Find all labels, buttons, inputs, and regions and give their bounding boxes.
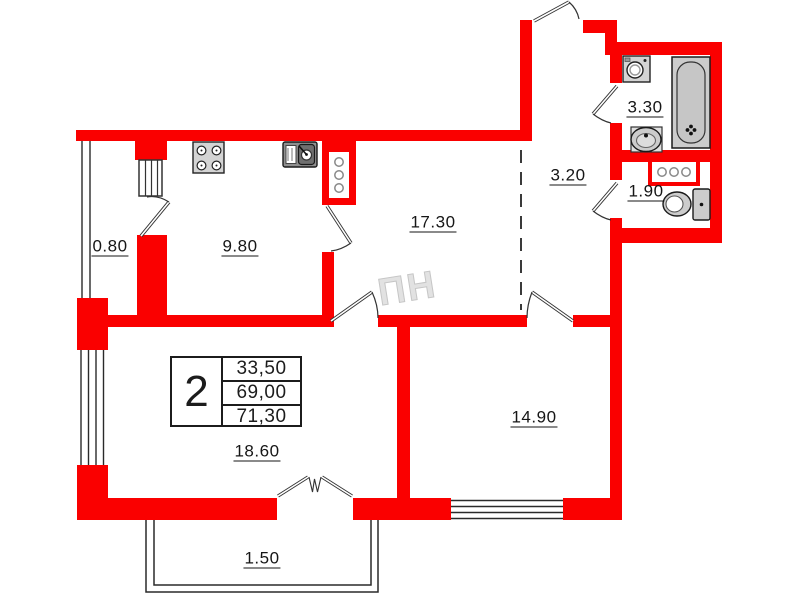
plan-linework	[0, 0, 800, 600]
room-area-label-kitchen: 9.80	[221, 238, 258, 257]
room-area-label-bedroom: 14.90	[510, 409, 557, 428]
room-area-label-bathroom: 3.30	[626, 99, 663, 118]
door-kitchen	[327, 206, 351, 251]
door-left-balcony	[141, 197, 169, 236]
window-lines	[81, 141, 563, 519]
rooms-count: 2	[172, 358, 223, 425]
door-main-room	[331, 292, 378, 321]
room-area-label-balcony-left: 0.80	[91, 238, 128, 257]
door-wc	[593, 183, 617, 220]
balcony-door-block	[139, 160, 162, 196]
room-area-label-main-room: 18.60	[233, 443, 280, 462]
apartment-summary-table: 2 33,50 69,00 71,30	[170, 356, 302, 427]
kitchen-sink-icon	[283, 142, 317, 167]
bathtub-icon	[672, 57, 710, 148]
area-value-row: 69,00	[223, 382, 300, 406]
stove-icon	[193, 142, 224, 173]
room-area-label-hallway: 3.20	[549, 167, 586, 186]
washing-machine-icon	[623, 56, 650, 82]
room-area-label-balcony-bottom: 1.50	[243, 550, 280, 569]
floor-plan: 0.80 9.80 17.30 3.20 3.30 1.90 14.90 18.…	[0, 0, 800, 600]
washbasin-icon	[631, 127, 662, 152]
door-bedroom	[527, 292, 573, 321]
door-bottom-balcony	[278, 477, 352, 496]
vent-shaft-icon	[329, 152, 349, 198]
room-area-label-wc: 1.90	[627, 183, 664, 202]
area-value-row: 71,30	[223, 406, 300, 428]
toilet-icon	[663, 189, 710, 220]
door-entrance	[534, 2, 579, 21]
area-value-row: 33,50	[223, 358, 300, 382]
area-values-column: 33,50 69,00 71,30	[223, 358, 300, 425]
door-bathroom	[593, 86, 617, 123]
vent-shaft-icon	[652, 162, 696, 182]
room-area-label-living-room: 17.30	[409, 214, 456, 233]
